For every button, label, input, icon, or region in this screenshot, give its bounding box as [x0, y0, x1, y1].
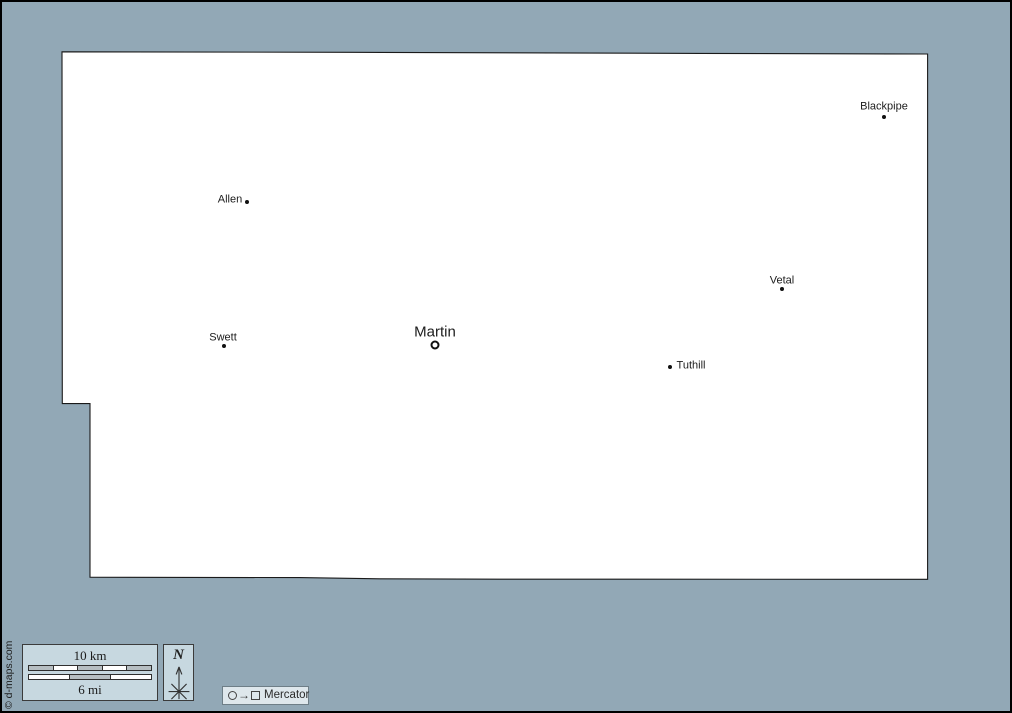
scale-segment: [53, 665, 79, 671]
town-marker-tuthill: [668, 365, 672, 369]
town-marker-vetal: [780, 287, 784, 291]
town-label-tuthill: Tuthill: [677, 361, 706, 372]
town-label-swett: Swett: [209, 333, 237, 344]
square-glyph-icon: [251, 691, 260, 700]
arrow-right-icon: →: [238, 689, 250, 701]
scale-segment: [28, 674, 70, 680]
scale-km-label: 10 km: [23, 649, 157, 662]
mi-scale-bar: [28, 674, 152, 680]
compass-rose-icon: [166, 665, 192, 701]
circle-glyph-icon: [228, 691, 237, 700]
scale-mi-label: 6 mi: [23, 683, 157, 696]
projection-label: Mercator: [264, 690, 309, 702]
scale-segment: [77, 665, 103, 671]
scale-segment: [69, 674, 111, 680]
copyright-text: © d-maps.com: [4, 641, 15, 709]
scale-bar-box: 10 km 6 mi: [22, 644, 158, 701]
town-label-martin: Martin: [414, 325, 456, 340]
compass-box: N: [163, 644, 194, 701]
scale-segment: [28, 665, 54, 671]
town-label-vetal: Vetal: [770, 276, 794, 287]
town-marker-blackpipe: [882, 115, 886, 119]
town-marker-martin: [431, 341, 440, 350]
north-label: N: [164, 647, 193, 664]
town-marker-swett: [222, 344, 226, 348]
projection-badge: → Mercator: [222, 686, 309, 705]
scale-segment: [102, 665, 128, 671]
scale-segment: [126, 665, 152, 671]
county-shape: [62, 52, 928, 580]
town-marker-allen: [245, 200, 249, 204]
km-scale-bar: [28, 665, 152, 671]
town-label-blackpipe: Blackpipe: [860, 102, 908, 113]
scale-segment: [110, 674, 152, 680]
map-canvas: BlackpipeAllenVetalSwettMartinTuthill 10…: [0, 0, 1012, 713]
town-label-allen: Allen: [218, 195, 242, 206]
